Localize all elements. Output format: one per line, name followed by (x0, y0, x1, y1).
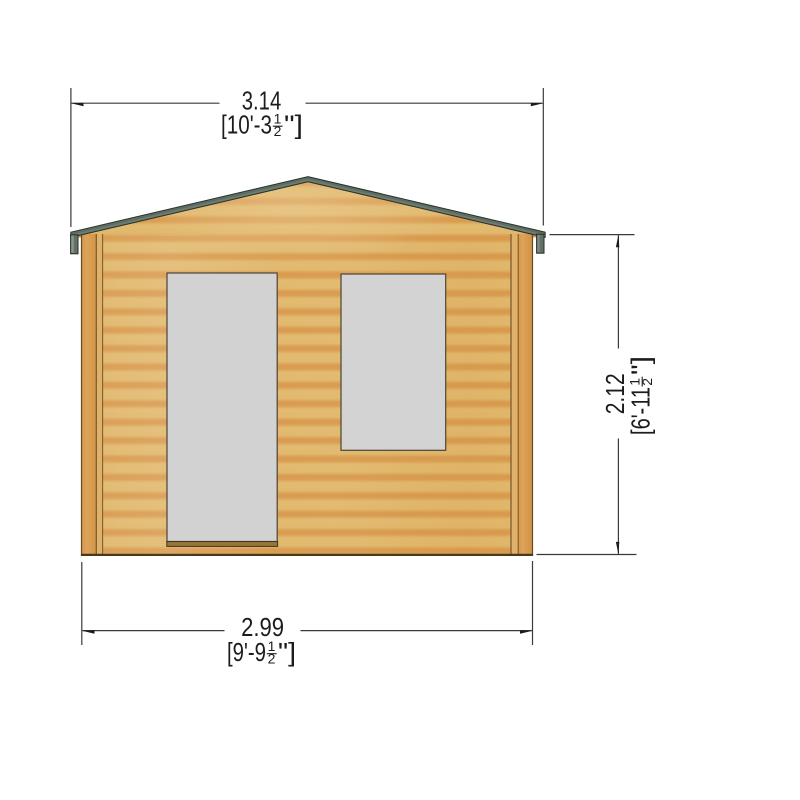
svg-text:[6'-11: [6'-11 (626, 387, 656, 435)
svg-text:2: 2 (639, 378, 655, 386)
svg-text:2: 2 (268, 650, 276, 666)
svg-text:[9'-9: [9'-9 (227, 637, 266, 667)
svg-text:"]: "] (284, 110, 303, 140)
svg-text:2: 2 (274, 123, 282, 139)
svg-text:[10'-3: [10'-3 (221, 110, 272, 140)
svg-text:"]: "] (278, 637, 296, 667)
svg-text:"]: "] (626, 356, 656, 375)
